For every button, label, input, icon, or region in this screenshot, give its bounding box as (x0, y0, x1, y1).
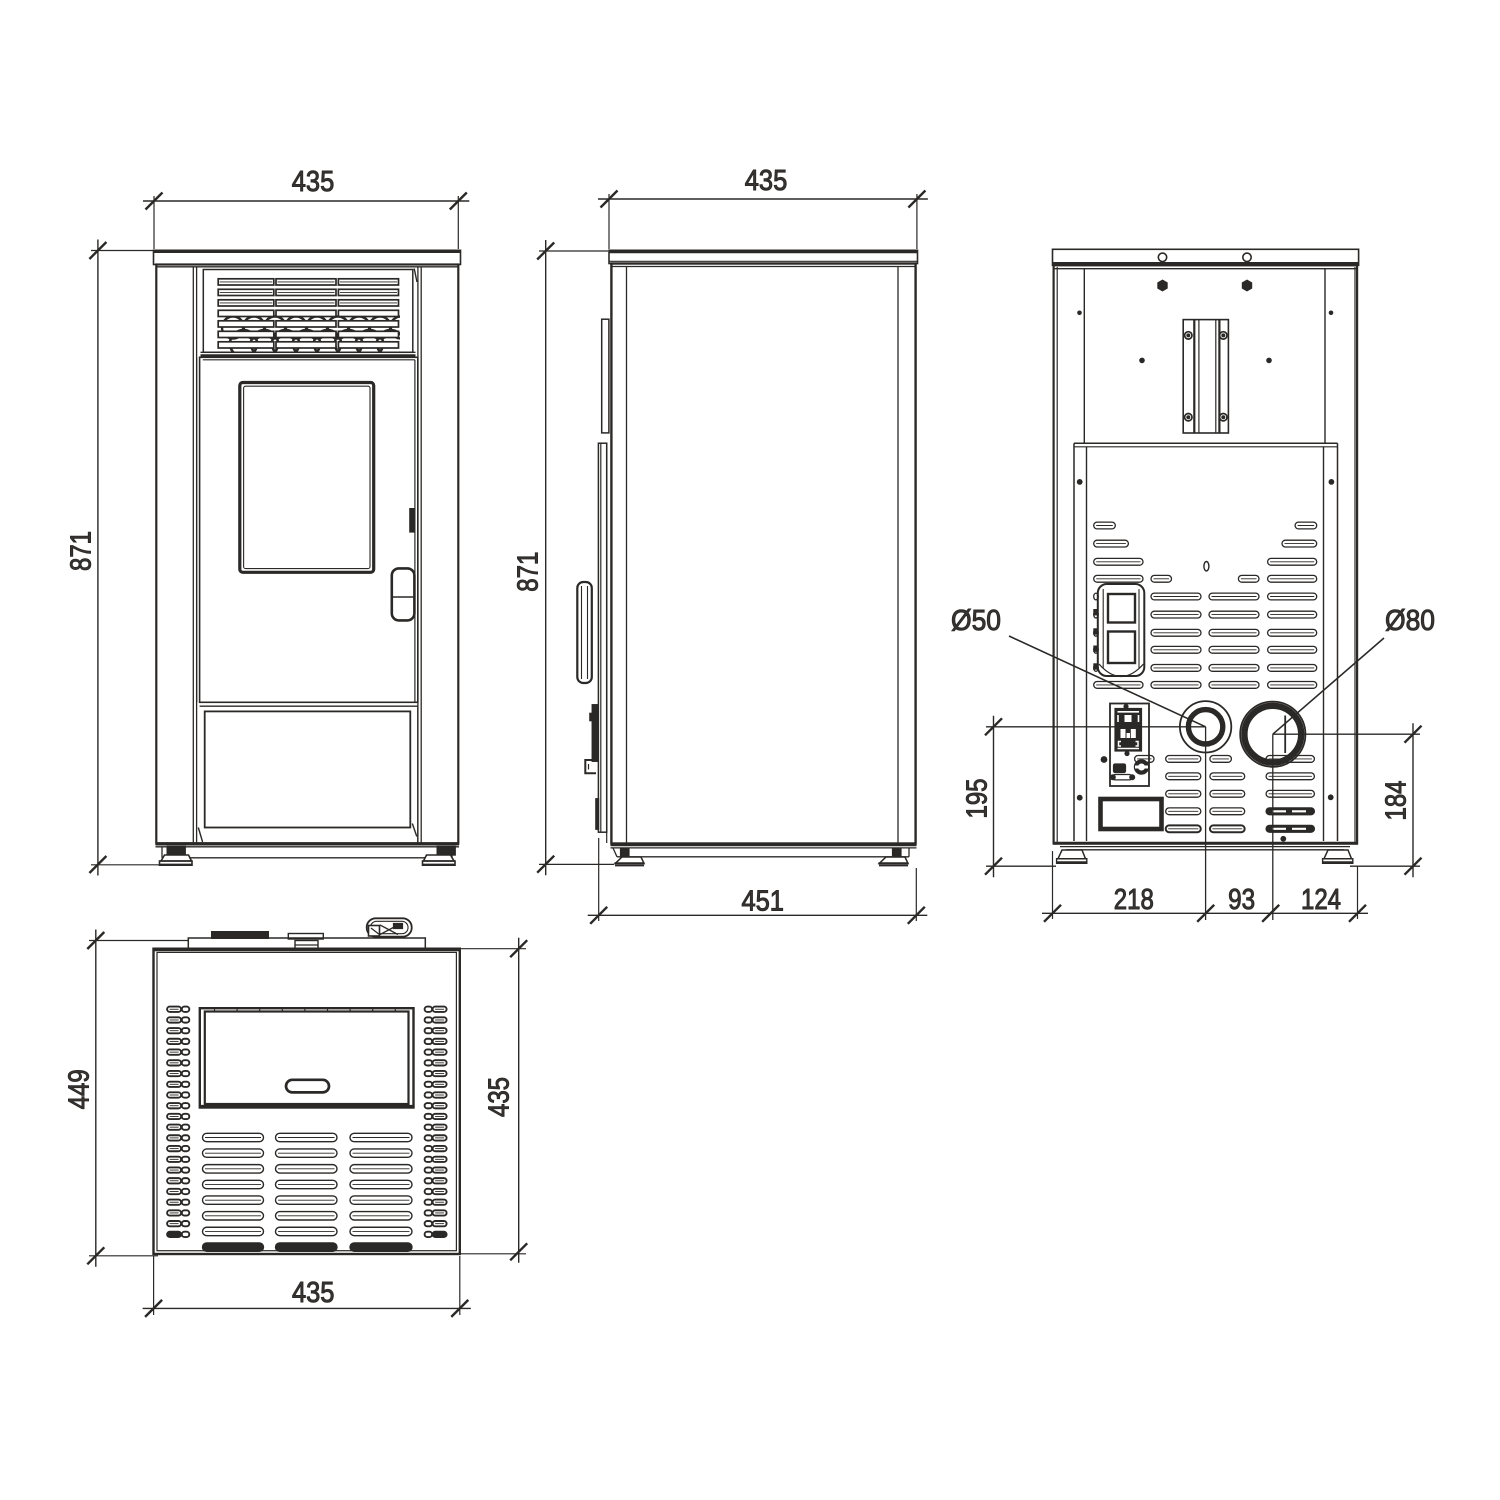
svg-text:435: 435 (484, 1077, 516, 1117)
svg-text:124: 124 (1301, 884, 1341, 916)
svg-text:184: 184 (1381, 781, 1413, 821)
svg-text:435: 435 (292, 166, 335, 198)
svg-text:435: 435 (292, 1277, 335, 1309)
svg-text:449: 449 (63, 1069, 95, 1109)
svg-text:93: 93 (1228, 884, 1255, 916)
svg-text:Ø50: Ø50 (951, 605, 1001, 637)
svg-text:218: 218 (1114, 884, 1154, 916)
svg-text:435: 435 (745, 165, 788, 197)
svg-text:Ø80: Ø80 (1385, 605, 1435, 637)
svg-text:871: 871 (513, 552, 545, 592)
svg-text:451: 451 (741, 886, 784, 918)
svg-text:195: 195 (962, 779, 994, 819)
svg-text:871: 871 (66, 531, 98, 571)
